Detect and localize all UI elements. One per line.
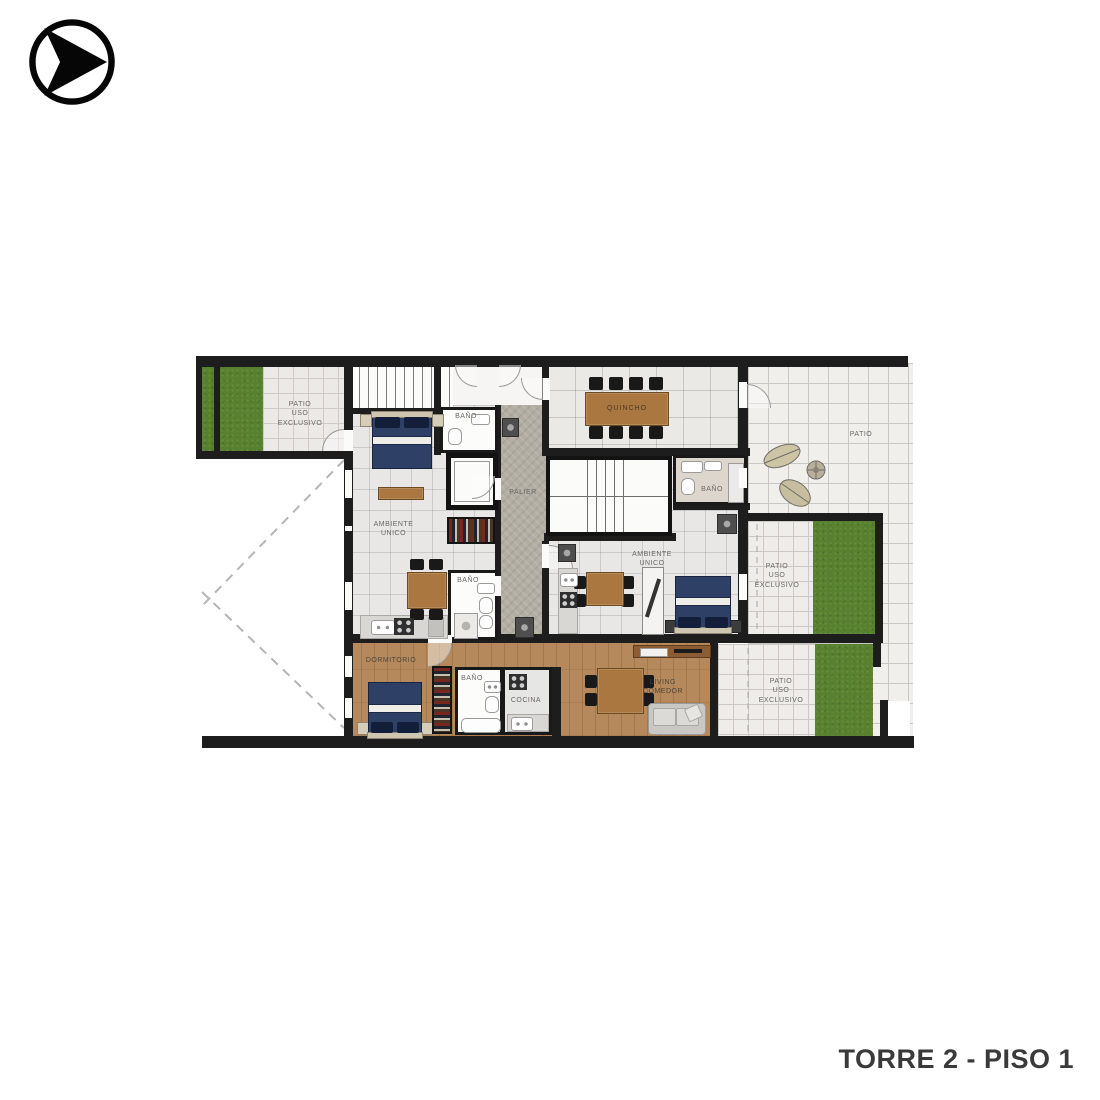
wall	[196, 356, 202, 455]
dining-table	[407, 572, 447, 609]
void-area	[202, 459, 344, 736]
sink	[511, 717, 533, 731]
chair	[589, 377, 603, 390]
room-label-patio-top-left: PATIO USO EXCLUSIVO	[260, 400, 340, 428]
appliance	[428, 617, 444, 637]
wall-building-left	[344, 363, 353, 736]
wall	[873, 643, 881, 667]
logo	[26, 16, 118, 108]
toilet	[448, 428, 462, 445]
bathroom-right	[673, 455, 747, 505]
palier-floor	[500, 405, 546, 639]
window	[345, 526, 352, 531]
vanity-sink	[704, 461, 722, 471]
chair	[649, 426, 663, 439]
sofa	[648, 703, 706, 735]
room-label-bano-bottom: BAÑO	[455, 674, 489, 683]
utility-box	[515, 617, 534, 638]
room-label-quincho: QUINCHO	[586, 404, 668, 413]
window	[345, 656, 352, 677]
grass-area-mid	[813, 521, 875, 635]
chair	[609, 377, 623, 390]
double-bed	[372, 413, 432, 469]
wall	[214, 363, 220, 452]
toilet	[479, 597, 493, 614]
vanity-sink	[681, 461, 703, 473]
room-label-patio-uso-right: PATIO USO EXCLUSIVO	[742, 562, 812, 590]
room-label-dormitorio: DORMITORIO	[359, 656, 423, 665]
window	[345, 582, 352, 610]
tv-unit	[633, 645, 711, 658]
utility-box	[558, 544, 576, 562]
double-bed	[675, 576, 731, 632]
chair	[410, 559, 424, 570]
door-opening	[495, 576, 501, 596]
room-label-bano-left: BAÑO	[450, 576, 486, 585]
door-opening	[542, 544, 549, 568]
chair	[649, 377, 663, 390]
chair	[609, 426, 623, 439]
wardrobe	[642, 567, 664, 635]
bench	[378, 487, 424, 500]
room-label-bano-top: BAÑO	[448, 412, 484, 421]
dining-table	[586, 572, 624, 606]
wardrobe	[447, 517, 495, 544]
floor-title: TORRE 2 - PISO 1	[838, 1044, 1074, 1075]
floorplan: QUINCHO	[196, 348, 918, 752]
stairwell	[546, 456, 672, 536]
window	[739, 468, 747, 488]
bidet	[479, 615, 493, 629]
wall	[542, 363, 549, 453]
stove	[560, 592, 577, 608]
arrow-icon	[26, 16, 118, 108]
window	[345, 698, 352, 718]
wardrobe	[432, 666, 452, 734]
wall-living-right	[710, 643, 718, 736]
chair	[629, 426, 643, 439]
room-label-palier: PALIER	[500, 488, 546, 497]
wall-bottom	[202, 736, 914, 748]
chair	[429, 609, 443, 620]
chair	[429, 559, 443, 570]
room-label-ambiente-unico-right: AMBIENTE UNICO	[616, 550, 688, 569]
utility-box	[717, 514, 737, 534]
wall-patio-mid-right	[875, 513, 883, 641]
room-label-bano-right: BAÑO	[694, 485, 730, 494]
sink	[371, 620, 395, 635]
toilet	[485, 696, 499, 713]
wall	[196, 451, 352, 459]
shower-tray	[454, 613, 478, 639]
grass-strip-left	[202, 363, 214, 451]
grass-area-top-left	[220, 363, 263, 451]
stove	[509, 674, 527, 690]
toilet	[681, 478, 695, 495]
door-opening	[344, 430, 353, 451]
wall	[880, 700, 888, 736]
door-opening	[739, 382, 747, 408]
tv-icon	[640, 648, 668, 657]
chair	[585, 693, 597, 706]
quincho-table: QUINCHO	[585, 392, 669, 426]
patio-notch	[888, 701, 910, 736]
room-label-cocina: COCINA	[504, 696, 548, 705]
wall-top	[196, 356, 908, 367]
wall	[552, 667, 561, 736]
chair	[629, 377, 643, 390]
grass-area-bottom	[815, 644, 873, 736]
tree-icons	[752, 438, 852, 518]
stove	[394, 618, 414, 635]
room-label-ambiente-unico-left: AMBIENTE UNICO	[356, 520, 431, 539]
room-label-patio-right: PATIO	[836, 430, 886, 439]
bathtub	[461, 718, 501, 733]
door-opening	[543, 378, 550, 400]
sink	[560, 573, 578, 587]
chair	[589, 426, 603, 439]
double-bed	[368, 682, 422, 737]
room-label-patio-uso-bottom: PATIO USO EXCLUSIVO	[746, 677, 816, 705]
room-label-living-comedor: LIVING COMEDOR	[628, 678, 698, 697]
nightstand	[432, 414, 444, 427]
utility-box	[502, 418, 519, 437]
window	[345, 470, 352, 498]
chair	[585, 675, 597, 688]
